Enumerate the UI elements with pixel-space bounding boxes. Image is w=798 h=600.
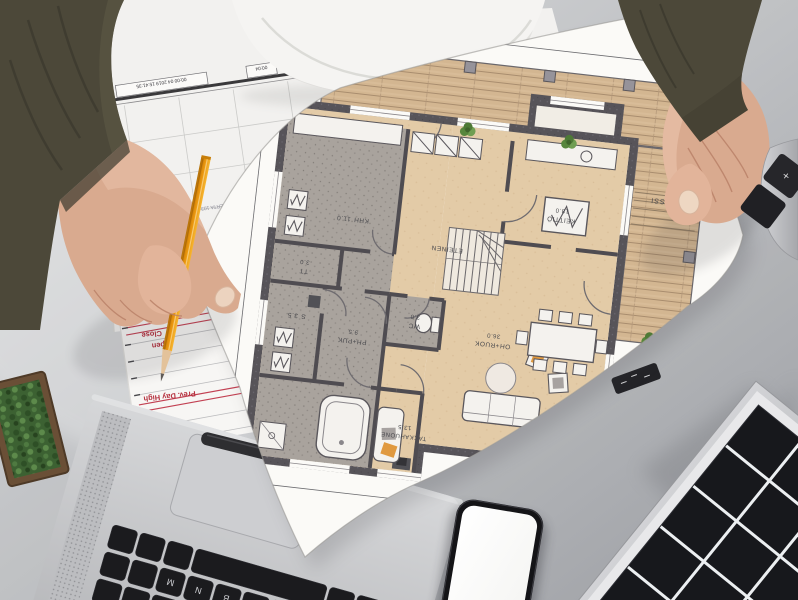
shower xyxy=(257,421,286,450)
photo-scene: 00:00 04 2019 15:41:35 00:04 00:00 04 6.… xyxy=(0,0,798,600)
sauna-bench xyxy=(273,327,294,348)
room-area-phpuk: 9.5 xyxy=(348,328,359,335)
khh-appliance xyxy=(287,190,308,211)
staircase xyxy=(442,227,505,295)
s-name: S xyxy=(300,312,306,320)
s-area: 3.5 xyxy=(287,311,298,319)
khh-appliance xyxy=(284,215,305,236)
room-label-wc: WC xyxy=(408,321,421,329)
sauna-stove xyxy=(308,295,321,308)
bathtub xyxy=(315,394,372,461)
room-area-tt: 3.0 xyxy=(299,258,310,265)
sauna-bench xyxy=(271,352,292,373)
armchair xyxy=(548,373,568,393)
room-area-wc: 3.0 xyxy=(410,313,421,320)
room-label-tt: TT xyxy=(299,267,309,275)
